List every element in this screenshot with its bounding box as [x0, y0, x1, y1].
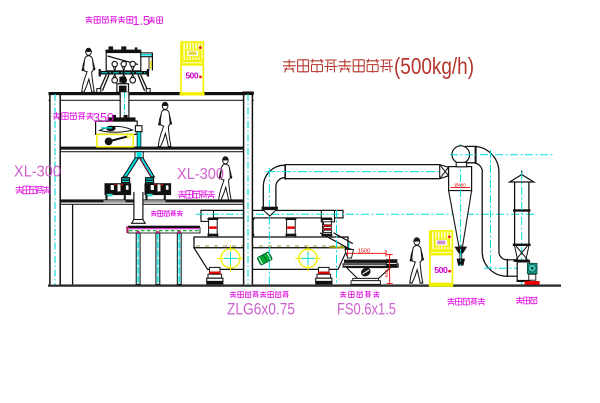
svg-text:(500kg/h): (500kg/h)	[394, 53, 474, 79]
svg-text:500: 500	[434, 265, 448, 275]
svg-text:545: 545	[384, 269, 390, 277]
svg-text:ZLG6x0.75: ZLG6x0.75	[227, 300, 295, 319]
svg-text:500: 500	[186, 71, 199, 81]
svg-text:XL-300: XL-300	[14, 164, 61, 181]
svg-text:XL-300: XL-300	[177, 166, 224, 183]
svg-text:FS0.6x1.5: FS0.6x1.5	[337, 300, 396, 319]
svg-text:350: 350	[93, 111, 114, 125]
svg-text:1500: 1500	[358, 248, 370, 254]
svg-text:1.5: 1.5	[133, 14, 150, 28]
